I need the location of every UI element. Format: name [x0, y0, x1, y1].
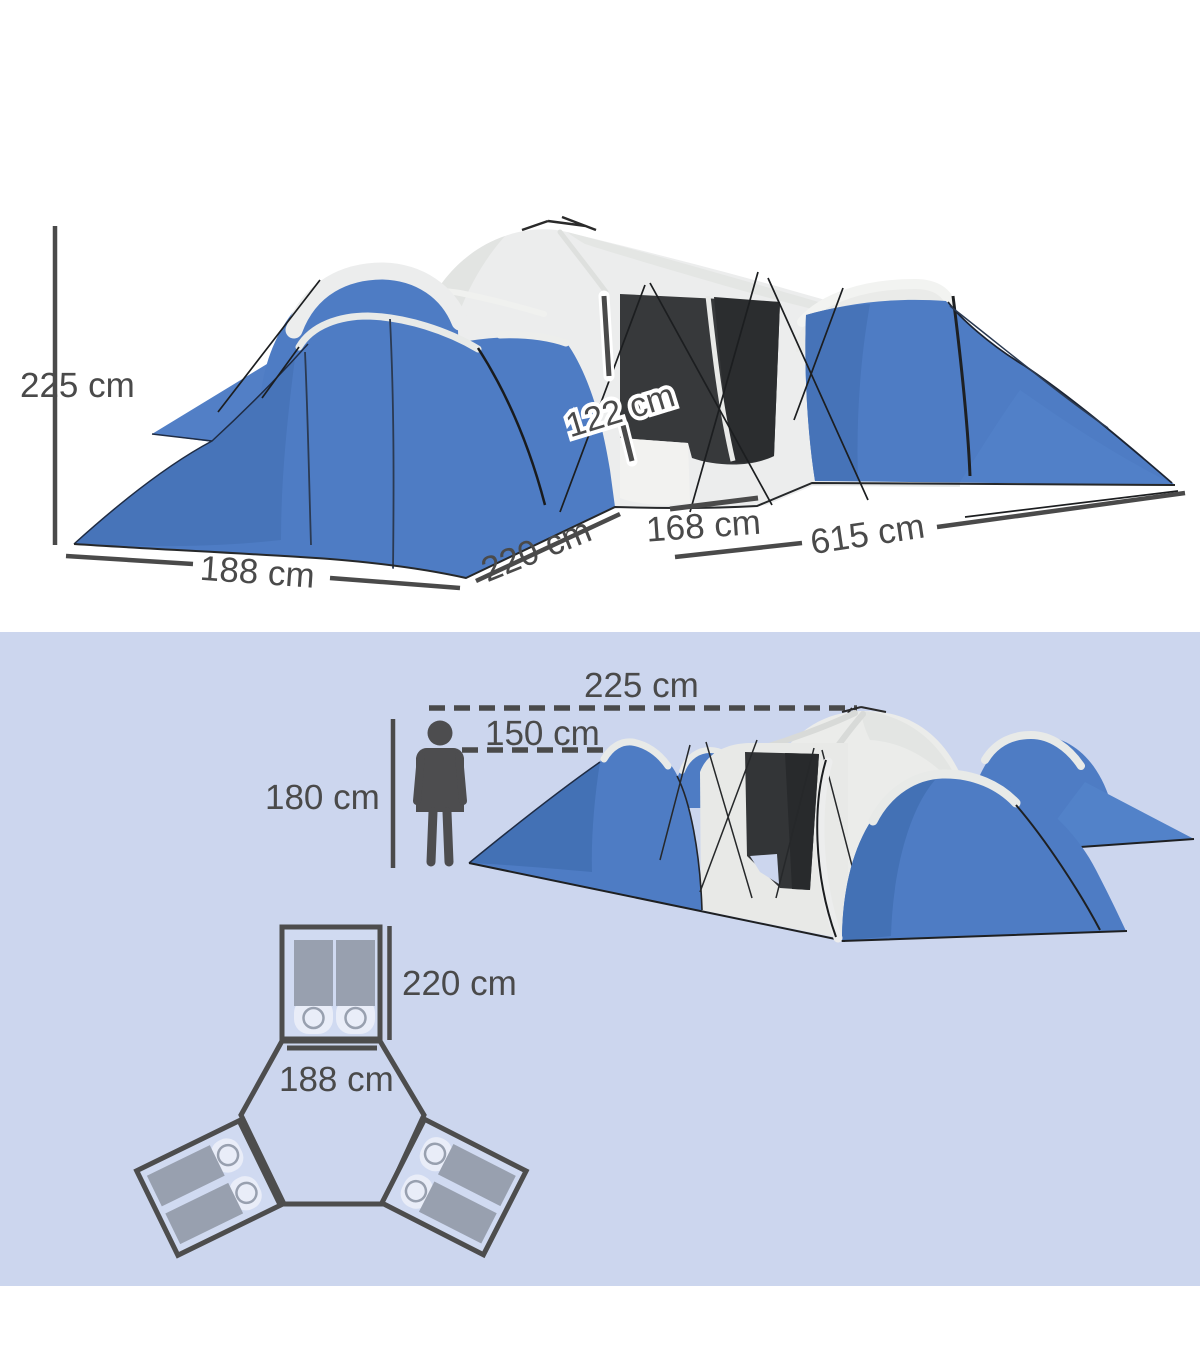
svg-text:225 cm: 225 cm — [20, 366, 135, 405]
svg-text:188 cm: 188 cm — [199, 549, 316, 596]
svg-text:225 cm: 225 cm — [584, 666, 699, 705]
svg-text:220 cm: 220 cm — [402, 964, 517, 1003]
svg-text:188 cm: 188 cm — [279, 1060, 394, 1099]
svg-text:180 cm: 180 cm — [265, 778, 380, 817]
svg-text:150 cm: 150 cm — [485, 714, 600, 753]
svg-text:168 cm: 168 cm — [645, 503, 762, 550]
